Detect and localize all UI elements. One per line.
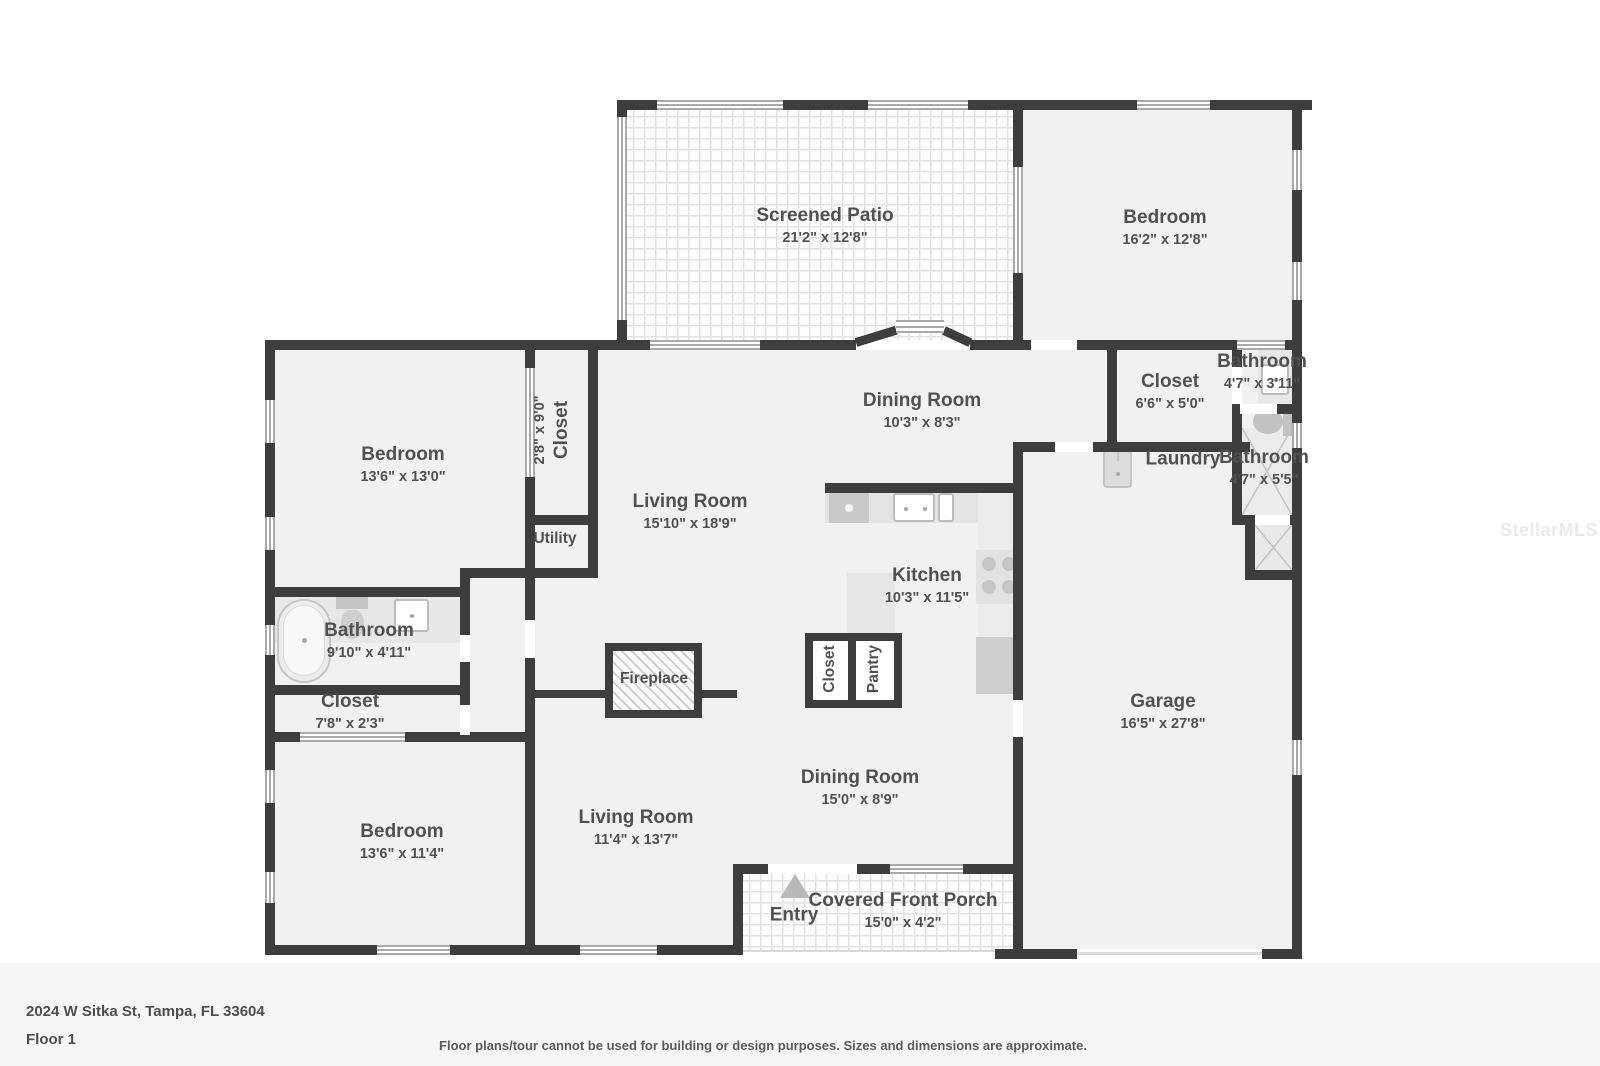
- room-label-bathroom-3: Bathroom9'10" x 4'11": [324, 619, 414, 663]
- wall-segment: [525, 515, 598, 525]
- window: [265, 625, 275, 655]
- room-label-bathroom-2: Bathroom4'7" x 5'5": [1219, 446, 1309, 490]
- address-text: 2024 W Sitka St, Tampa, FL 33604: [26, 1003, 265, 1020]
- window: [657, 100, 783, 110]
- room-label-laundry: Laundry: [1146, 448, 1221, 473]
- room-label-bedroom-bottom-left: Bedroom13'6" x 11'4": [360, 820, 444, 864]
- room-label-covered-front-porch: Covered Front Porch15'0" x 4'2": [809, 889, 998, 933]
- window: [580, 945, 657, 955]
- window: [1292, 262, 1302, 300]
- wall-segment: [1107, 340, 1117, 452]
- kitchen-sink-icon: [893, 493, 935, 522]
- wall-segment: [535, 690, 607, 698]
- window: [868, 100, 968, 110]
- sliding-door: [1013, 167, 1023, 273]
- porch-edge-line: [743, 950, 1013, 952]
- door-opening: [1255, 515, 1290, 525]
- window: [1237, 340, 1285, 350]
- door-opening: [768, 864, 857, 874]
- disclaimer-text: Floor plans/tour cannot be used for buil…: [439, 1038, 1087, 1053]
- wall-segment: [805, 633, 813, 708]
- room-label-closet-kitchen: Closet: [820, 645, 840, 692]
- wall-segment: [1245, 570, 1302, 580]
- room-label-bedroom-top-right: Bedroom16'2" x 12'8": [1122, 206, 1207, 250]
- wall-segment: [1292, 100, 1302, 959]
- washer-icon: [1103, 450, 1132, 488]
- bathtub-icon: [277, 599, 331, 683]
- kitchen-half-sink-icon: [938, 493, 954, 522]
- wall-segment: [733, 864, 743, 955]
- shower-stall-pattern: [1255, 525, 1292, 570]
- room-label-pantry: Pantry: [864, 645, 884, 693]
- door-opening: [1055, 442, 1093, 452]
- entry-arrow-icon: [780, 874, 810, 898]
- wall-segment: [700, 690, 737, 698]
- room-label-closet-vertical: 2'8" x 9'0"Closet: [531, 395, 575, 464]
- room-label-closet-2: Closet7'8" x 2'3": [315, 690, 384, 734]
- room-label-living-room-1: Living Room15'10" x 18'9": [632, 490, 747, 534]
- window: [1292, 740, 1302, 775]
- wall-segment: [265, 340, 1302, 350]
- wall-segment: [894, 633, 902, 708]
- window: [1292, 150, 1302, 190]
- wall-segment: [588, 340, 598, 578]
- wall-segment: [848, 633, 856, 708]
- floor-label: Floor 1: [26, 1031, 76, 1048]
- stellar-mls-watermark: StellarMLS: [1500, 520, 1598, 541]
- room-label-dining-room-2: Dining Room15'0" x 8'9": [801, 766, 919, 810]
- room-label-fireplace: Fireplace: [620, 669, 688, 689]
- window: [265, 770, 275, 803]
- dishwasher-icon: [829, 493, 869, 523]
- garage-door-line: [1077, 952, 1262, 955]
- room-label-bathroom-1: Bathroom4'7" x 3'11": [1217, 350, 1307, 394]
- room-label-closet-hall: Closet6'6" x 5'0": [1135, 370, 1204, 414]
- sliding-door: [650, 340, 760, 350]
- room-label-living-room-2: Living Room11'4" x 13'7": [578, 806, 693, 850]
- room-label-dining-room-1: Dining Room10'3" x 8'3": [863, 389, 981, 433]
- door-opening: [1240, 404, 1277, 414]
- window: [1292, 423, 1302, 448]
- toilet-tank-icon: [336, 597, 368, 609]
- window: [617, 117, 627, 320]
- window: [265, 400, 275, 443]
- window: [265, 517, 275, 550]
- wall-segment: [825, 483, 1023, 493]
- room-label-kitchen: Kitchen10'3" x 11'5": [885, 564, 969, 608]
- room-label-garage: Garage16'5" x 27'8": [1120, 690, 1205, 734]
- door-opening: [525, 620, 535, 658]
- wall-segment: [460, 568, 598, 578]
- bay-door: [896, 320, 944, 333]
- door-opening: [460, 705, 470, 735]
- floor-plan: Screened Patio21'2" x 12'8" Bedroom16'2"…: [0, 0, 1600, 1066]
- window: [890, 864, 963, 874]
- door-opening: [1031, 340, 1077, 350]
- room-label-bedroom-left: Bedroom13'6" x 13'0": [360, 443, 445, 487]
- wall-segment: [265, 587, 470, 597]
- wall-segment: [265, 945, 743, 955]
- window: [265, 872, 275, 903]
- room-label-utility: Utility: [533, 529, 576, 549]
- door-opening: [1013, 700, 1023, 737]
- room-label-screened-patio: Screened Patio21'2" x 12'8": [756, 204, 893, 248]
- window: [377, 945, 450, 955]
- window: [1137, 100, 1210, 110]
- door-opening: [460, 635, 470, 662]
